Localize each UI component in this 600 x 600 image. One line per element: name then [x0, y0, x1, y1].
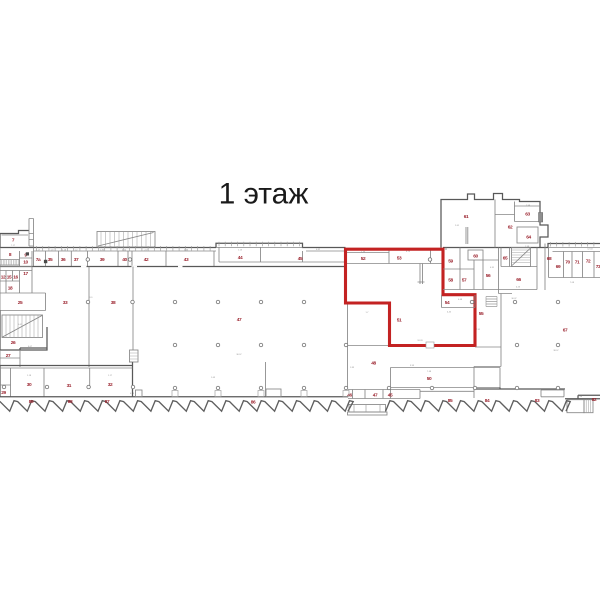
svg-text:68: 68 [547, 256, 552, 262]
svg-text:40: 40 [122, 257, 127, 263]
svg-text:66: 66 [516, 277, 521, 283]
svg-text:26: 26 [11, 340, 16, 346]
svg-text:71: 71 [575, 260, 580, 266]
svg-text:60: 60 [473, 254, 478, 260]
svg-text:27: 27 [6, 353, 11, 359]
svg-text:50: 50 [427, 376, 432, 382]
svg-text:38.97: 38.97 [553, 350, 559, 352]
svg-text:35: 35 [48, 257, 53, 263]
svg-text:30: 30 [27, 382, 32, 388]
svg-text:47: 47 [237, 317, 242, 323]
svg-text:62: 62 [508, 225, 513, 231]
svg-text:83: 83 [535, 398, 540, 404]
svg-text:25: 25 [18, 300, 23, 306]
svg-text:18: 18 [8, 286, 13, 292]
svg-text:70: 70 [565, 260, 570, 266]
svg-text:7а: 7а [36, 257, 41, 263]
svg-text:72: 72 [586, 259, 591, 265]
svg-text:1 этаж: 1 этаж [219, 178, 309, 211]
svg-text:43: 43 [184, 257, 189, 263]
svg-text:59: 59 [448, 259, 453, 265]
svg-text:36.37: 36.37 [511, 298, 517, 300]
svg-text:42: 42 [144, 257, 149, 263]
svg-text:37: 37 [74, 257, 79, 263]
svg-text:82: 82 [592, 397, 597, 403]
svg-text:65: 65 [503, 256, 508, 262]
svg-text:32: 32 [108, 382, 113, 388]
svg-text:33: 33 [63, 300, 68, 306]
svg-text:47: 47 [373, 393, 378, 399]
svg-text:45: 45 [388, 393, 393, 399]
svg-text:46: 46 [347, 393, 352, 399]
svg-text:17: 17 [23, 271, 28, 277]
svg-text:12.04: 12.04 [587, 249, 593, 251]
svg-text:39: 39 [100, 257, 105, 263]
svg-text:67: 67 [563, 328, 568, 334]
svg-text:53: 53 [397, 256, 402, 262]
svg-text:44: 44 [238, 255, 243, 261]
svg-text:29: 29 [1, 390, 6, 396]
svg-text:48: 48 [371, 361, 376, 367]
svg-text:64: 64 [526, 235, 531, 241]
svg-text:31: 31 [67, 383, 72, 389]
svg-text:73: 73 [596, 264, 600, 270]
svg-text:52: 52 [361, 256, 366, 262]
svg-text:61: 61 [464, 214, 469, 220]
svg-text:87: 87 [105, 399, 110, 405]
svg-text:16: 16 [13, 275, 18, 281]
svg-text:69: 69 [556, 264, 561, 270]
svg-text:55: 55 [479, 311, 484, 317]
svg-text:57: 57 [462, 278, 467, 284]
svg-text:86: 86 [251, 400, 256, 406]
svg-text:56: 56 [486, 273, 491, 279]
svg-text:18.33: 18.33 [417, 340, 423, 342]
svg-text:84: 84 [485, 398, 490, 404]
svg-text:12: 12 [1, 275, 6, 281]
svg-text:88: 88 [68, 399, 73, 405]
svg-text:54: 54 [445, 300, 450, 306]
svg-text:36: 36 [61, 257, 66, 263]
svg-text:63: 63 [525, 212, 530, 218]
svg-text:58: 58 [448, 278, 453, 284]
svg-text:89: 89 [29, 399, 34, 405]
svg-text:45: 45 [298, 256, 303, 262]
svg-text:10: 10 [23, 260, 28, 266]
svg-text:15: 15 [7, 275, 12, 281]
svg-text:38: 38 [111, 300, 116, 306]
svg-text:85: 85 [448, 398, 453, 404]
svg-text:51: 51 [397, 318, 402, 324]
svg-text:36.97: 36.97 [236, 354, 242, 356]
